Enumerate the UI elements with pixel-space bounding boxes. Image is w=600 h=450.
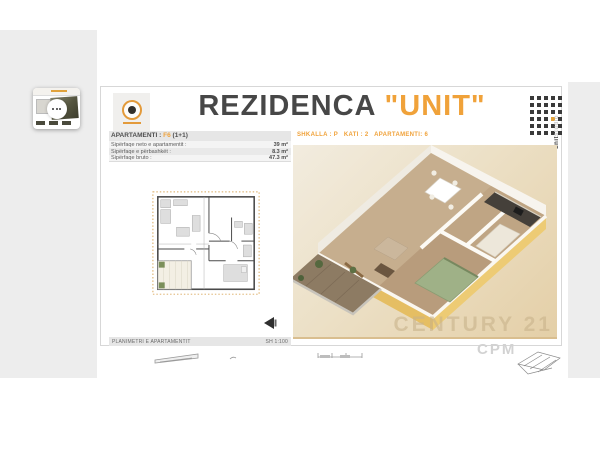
viewer-background-right — [568, 82, 600, 378]
viewer-background-left — [0, 30, 97, 378]
brochure-page: REZIDENCA "UNIT" unitstudio APARTAMENTI … — [100, 86, 562, 346]
area-value: 47.3 m² — [269, 155, 288, 161]
area-row-shared: Sipërfaqe e përbashkët : 8.3 m² — [109, 148, 291, 155]
vertical-brand-secondary: studio — [554, 115, 560, 136]
render-3d-area: CENTURY 21 — [293, 145, 557, 339]
company-logo — [113, 93, 150, 131]
location-line: SHKALLA : P KATI : 2 APARTAMENTI: 6 — [297, 132, 428, 138]
area-row-gross: Sipërfaqe bruto : 47.3 m² — [109, 155, 291, 162]
apartment-code: F6 — [163, 132, 171, 139]
vertical-brand-label: unitstudio — [554, 95, 560, 149]
watermark-century21: CENTURY 21 — [393, 313, 553, 337]
image-viewer: REZIDENCA "UNIT" unitstudio APARTAMENTI … — [0, 0, 600, 450]
area-row-net: Sipërfaqe neto e apartamentit : 39 m² — [109, 141, 291, 148]
logo-wordmark — [123, 122, 141, 124]
area-label: Sipërfaqe neto e apartamentit : — [111, 142, 187, 148]
area-value: 39 m² — [274, 142, 288, 148]
thumbnail-badge-icon — [47, 99, 67, 119]
drawing-scale: SH 1:100 — [266, 339, 288, 345]
area-label: Sipërfaqe bruto : — [111, 155, 152, 161]
next-page-sketches — [100, 346, 562, 376]
apartment-heading: APARTAMENTI : F6 (1+1) — [109, 131, 291, 141]
area-label: Sipërfaqe e përbashkët : — [111, 149, 171, 155]
apartment-type: (1+1) — [173, 132, 188, 139]
floorplan-2d — [147, 187, 265, 305]
thumbnail-header — [33, 88, 80, 96]
floorplan-3d-render — [293, 145, 557, 339]
logo-emblem-icon — [122, 100, 142, 120]
page-thumbnail[interactable] — [33, 88, 80, 129]
panel-footer: PLANIMETRI E APARTAMENTIT SH 1:100 — [109, 337, 291, 346]
apartment-heading-label: APARTAMENTI : — [111, 132, 161, 139]
page-title: REZIDENCA "UNIT" — [159, 90, 525, 123]
thumbnail-footer — [36, 121, 76, 126]
area-value: 8.3 m² — [272, 149, 288, 155]
north-arrow-icon — [263, 316, 277, 330]
title-main: REZIDENCA — [198, 90, 375, 122]
title-quoted: "UNIT" — [385, 90, 486, 122]
drawing-title: PLANIMETRI E APARTAMENTIT — [112, 339, 191, 345]
